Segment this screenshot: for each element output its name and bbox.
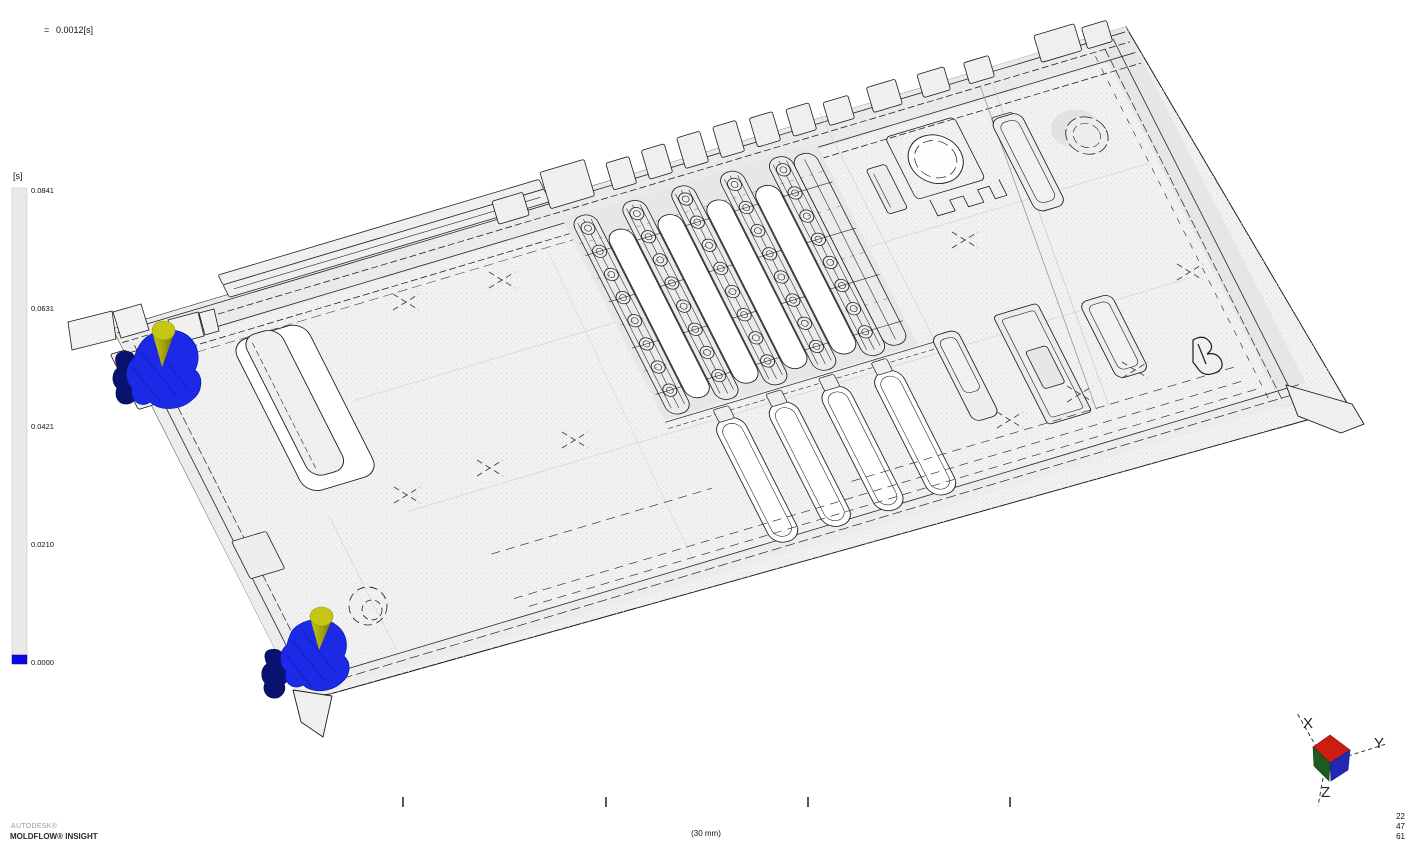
svg-text:(30 mm): (30 mm) <box>691 829 721 838</box>
svg-text:61: 61 <box>1396 832 1405 841</box>
svg-text:MOLDFLOW® INSIGHT: MOLDFLOW® INSIGHT <box>10 832 98 841</box>
svg-text:0.0631: 0.0631 <box>31 304 54 313</box>
svg-text:Y: Y <box>1374 735 1384 752</box>
svg-text:22: 22 <box>1396 812 1405 821</box>
svg-text:47: 47 <box>1396 822 1405 831</box>
svg-text:0.0210: 0.0210 <box>31 540 54 549</box>
svg-text:0.0841: 0.0841 <box>31 186 54 195</box>
svg-text:0.0000: 0.0000 <box>31 658 54 667</box>
svg-text:0.0421: 0.0421 <box>31 422 54 431</box>
svg-text:[s]: [s] <box>13 171 23 181</box>
svg-text:X: X <box>1303 715 1313 732</box>
svg-text:0.0012[s]: 0.0012[s] <box>56 25 93 35</box>
svg-text:Z: Z <box>1321 784 1330 801</box>
svg-text:AUTODESK®: AUTODESK® <box>11 822 58 830</box>
svg-text:=: = <box>44 25 49 35</box>
